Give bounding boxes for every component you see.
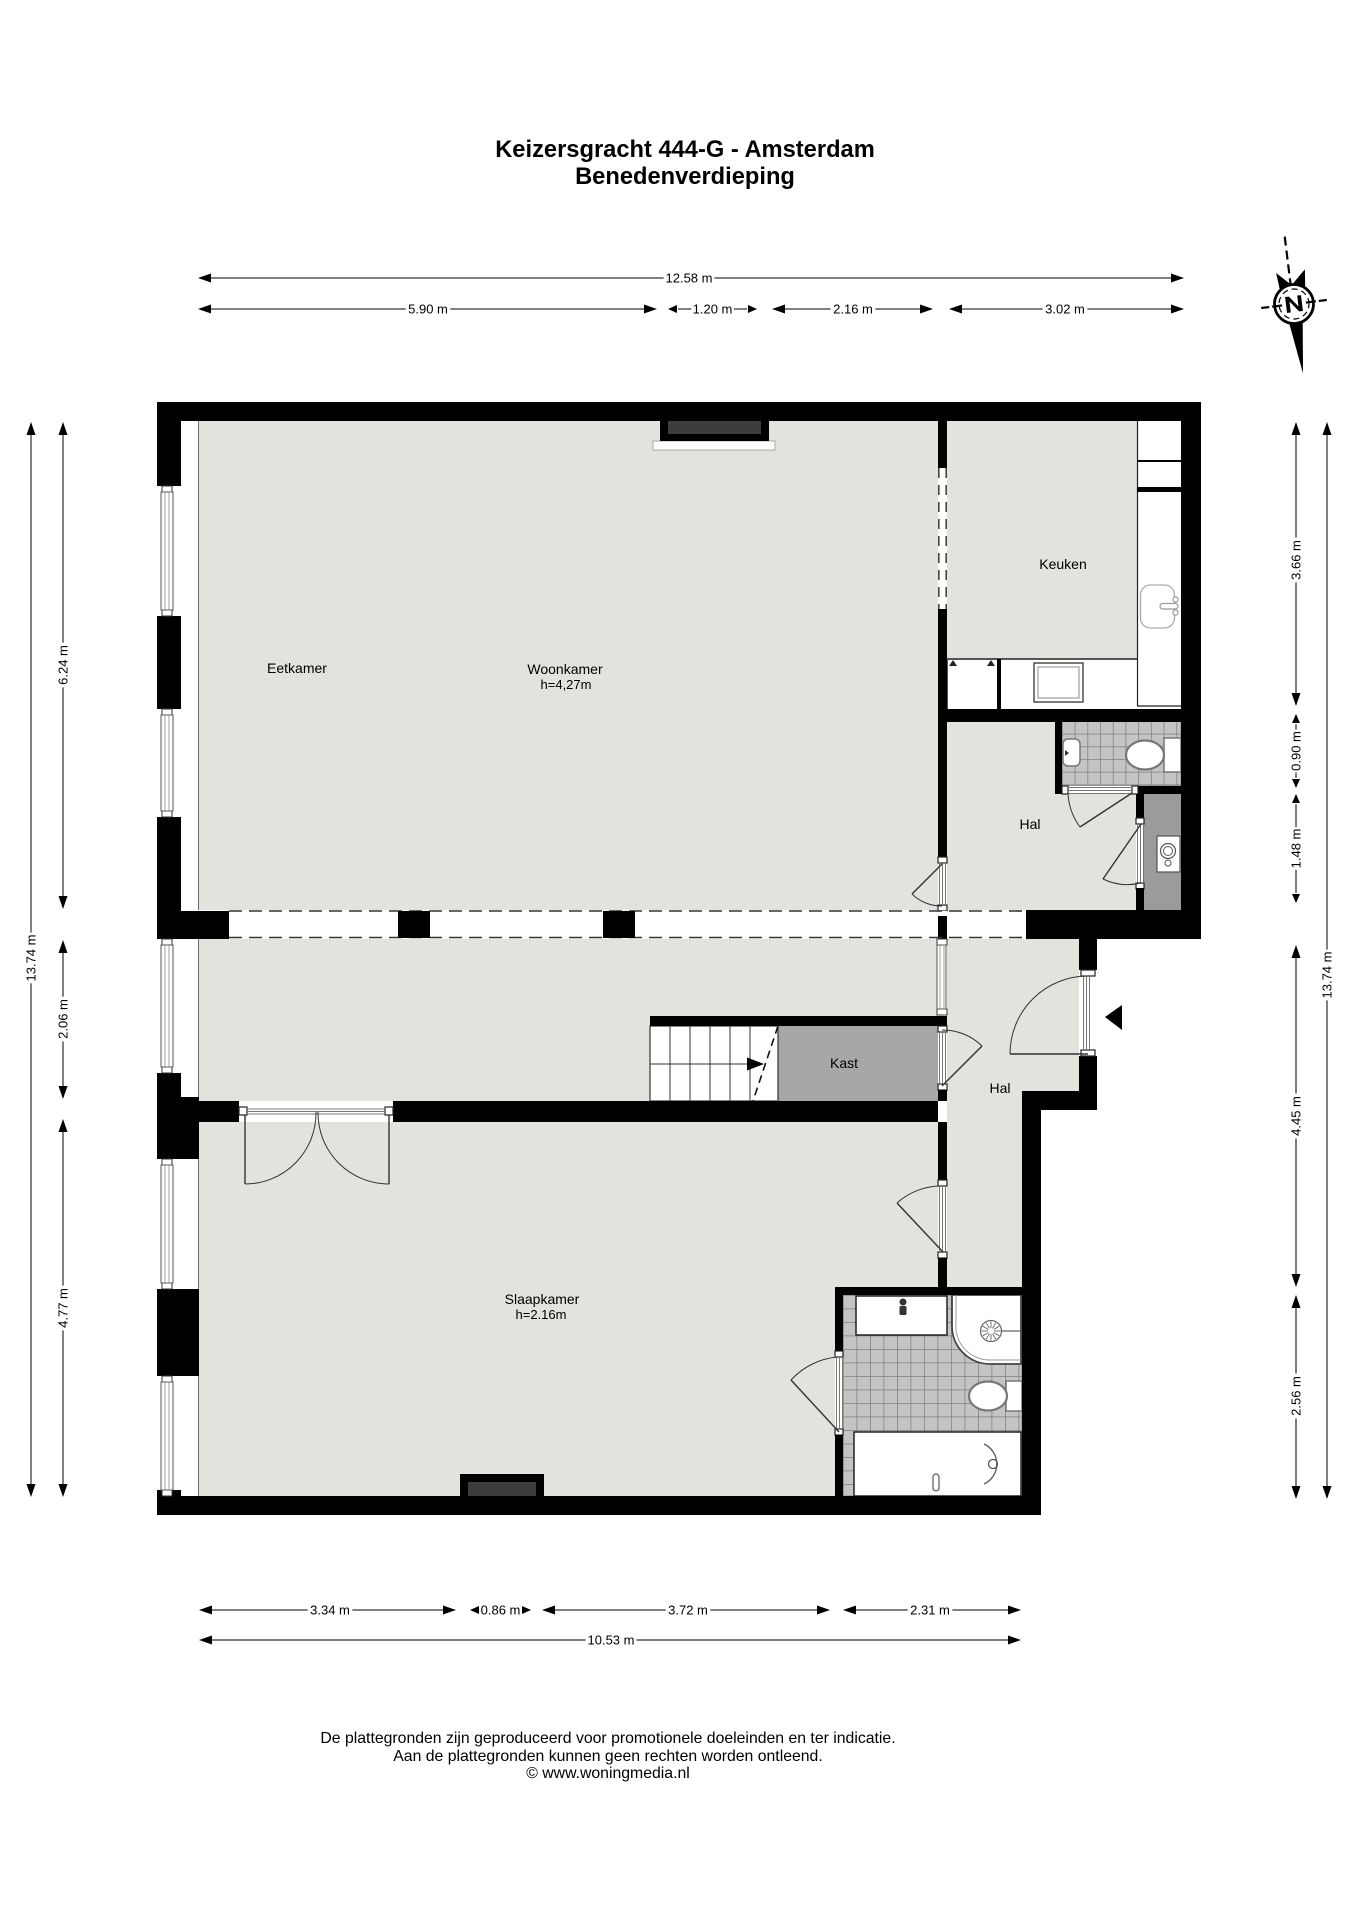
svg-text:© www.woningmedia.nl: © www.woningmedia.nl [526, 1765, 690, 1782]
svg-text:3.72 m: 3.72 m [668, 1603, 708, 1618]
svg-text:1.48 m: 1.48 m [1289, 829, 1304, 869]
svg-text:Slaapkamer: Slaapkamer [505, 1291, 580, 1307]
svg-text:2.16 m: 2.16 m [833, 302, 873, 317]
svg-text:Hal: Hal [989, 1080, 1010, 1096]
svg-text:13.74 m: 13.74 m [24, 935, 39, 982]
svg-text:h=2.16m: h=2.16m [516, 1307, 567, 1322]
svg-text:0.86 m: 0.86 m [481, 1603, 521, 1618]
svg-text:Eetkamer: Eetkamer [267, 660, 327, 676]
svg-text:2.06 m: 2.06 m [56, 999, 71, 1039]
svg-text:1.20 m: 1.20 m [693, 302, 733, 317]
svg-text:6.24 m: 6.24 m [56, 645, 71, 685]
svg-text:Benedenverdieping: Benedenverdieping [575, 164, 795, 190]
svg-text:h=4,27m: h=4,27m [541, 677, 592, 692]
svg-text:0.90 m: 0.90 m [1289, 731, 1304, 771]
svg-text:De plattegronden zijn geproduc: De plattegronden zijn geproduceerd voor … [320, 1730, 895, 1747]
svg-text:Aan de plattegronden kunnen ge: Aan de plattegronden kunnen geen rechten… [393, 1748, 823, 1765]
svg-text:13.74 m: 13.74 m [1320, 952, 1335, 999]
svg-text:2.56 m: 2.56 m [1289, 1376, 1304, 1416]
svg-text:Woonkamer: Woonkamer [527, 661, 603, 677]
svg-text:Hal: Hal [1019, 816, 1040, 832]
svg-text:Kast: Kast [830, 1055, 858, 1071]
svg-text:3.34 m: 3.34 m [310, 1603, 350, 1618]
svg-text:2.31 m: 2.31 m [910, 1603, 950, 1618]
svg-text:4.45 m: 4.45 m [1289, 1096, 1304, 1136]
svg-text:3.02 m: 3.02 m [1045, 302, 1085, 317]
svg-text:3.66 m: 3.66 m [1289, 540, 1304, 580]
svg-text:4.77 m: 4.77 m [56, 1288, 71, 1328]
svg-text:Keizersgracht 444-G - Amsterda: Keizersgracht 444-G - Amsterdam [495, 137, 875, 163]
svg-text:12.58 m: 12.58 m [666, 271, 713, 286]
svg-text:Keuken: Keuken [1039, 556, 1086, 572]
svg-text:10.53 m: 10.53 m [588, 1633, 635, 1648]
svg-text:5.90 m: 5.90 m [408, 302, 448, 317]
